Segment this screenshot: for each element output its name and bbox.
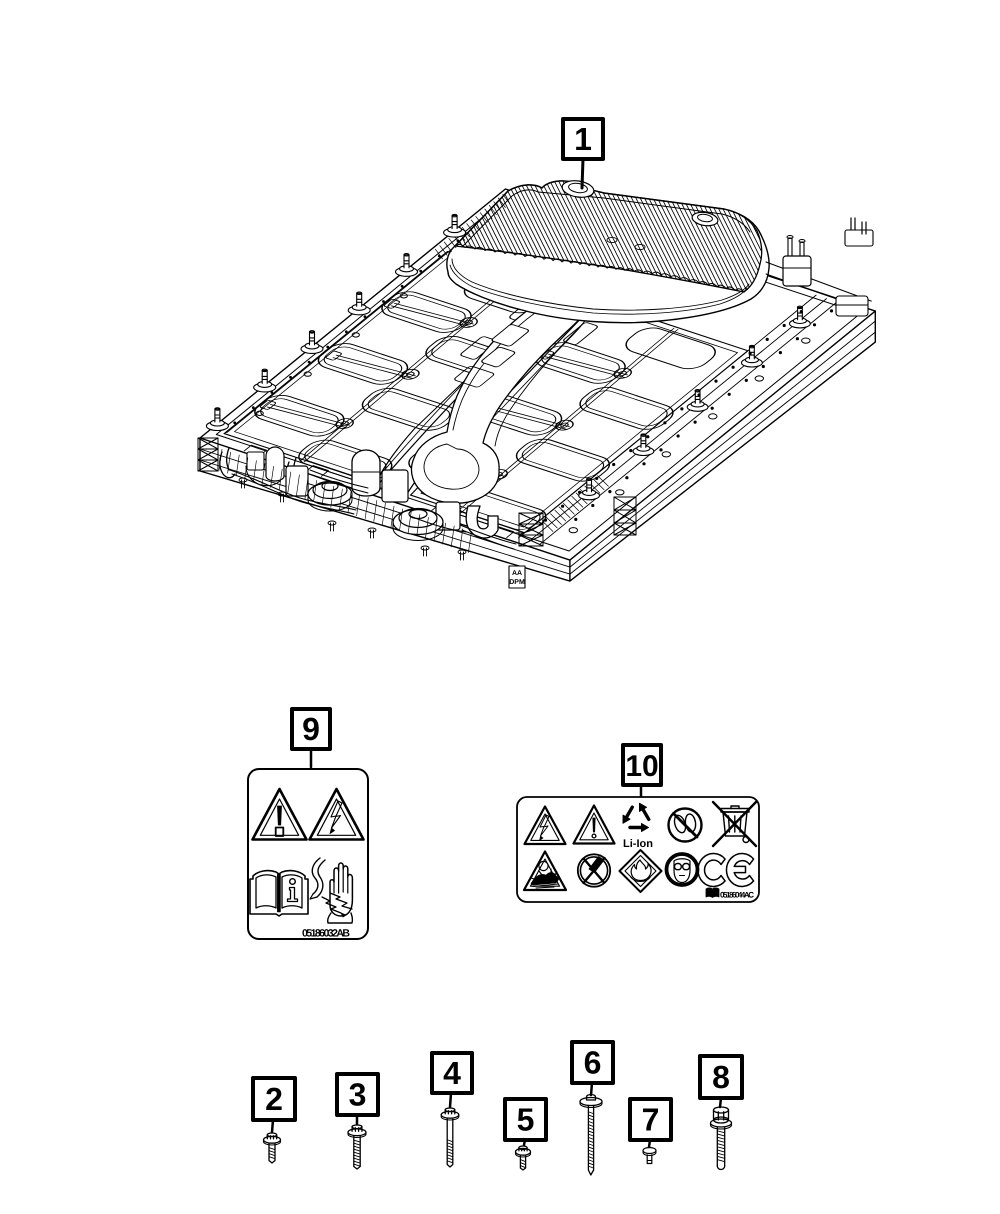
svg-text:05186044AC: 05186044AC — [720, 891, 754, 900]
svg-text:AA: AA — [512, 570, 522, 577]
svg-text:6: 6 — [584, 1045, 602, 1081]
svg-text:3: 3 — [349, 1077, 367, 1113]
svg-text:05186032AB: 05186032AB — [302, 928, 350, 940]
svg-text:2: 2 — [265, 1081, 283, 1117]
svg-text:4: 4 — [443, 1055, 461, 1091]
svg-text:Li-Ion: Li-Ion — [623, 838, 653, 850]
svg-text:9: 9 — [302, 711, 320, 747]
svg-text:8: 8 — [712, 1059, 730, 1095]
svg-text:1: 1 — [574, 121, 592, 157]
svg-text:5: 5 — [517, 1102, 535, 1138]
svg-text:10: 10 — [625, 750, 658, 783]
svg-text:DPM: DPM — [509, 579, 525, 586]
svg-text:7: 7 — [642, 1102, 660, 1138]
